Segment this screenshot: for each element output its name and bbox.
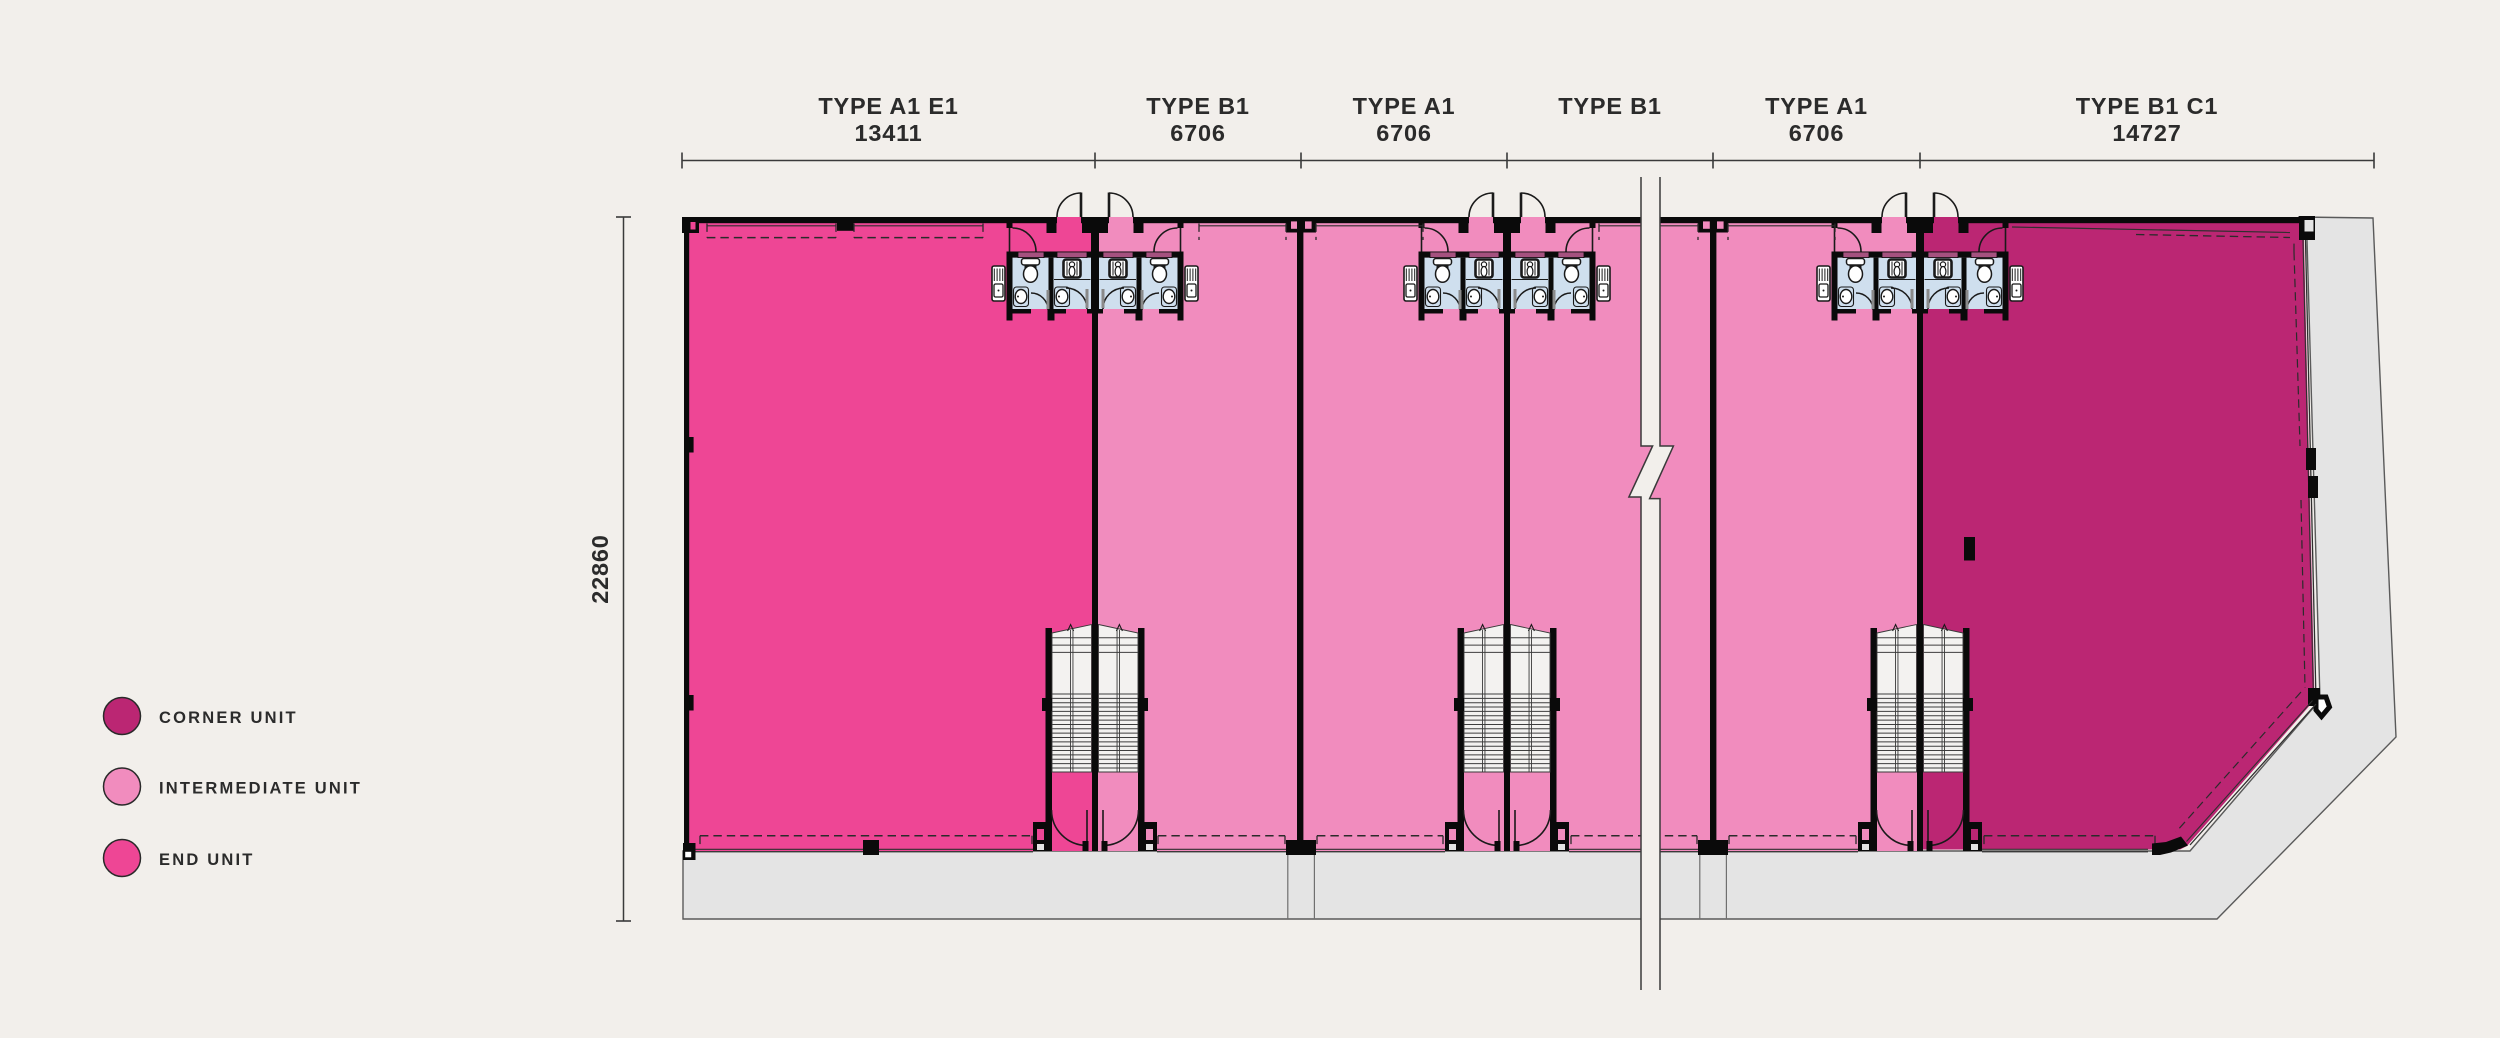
svg-text:TYPE B1 C1: TYPE B1 C1 <box>2076 93 2219 119</box>
svg-text:13411: 13411 <box>854 120 922 146</box>
svg-text:6706: 6706 <box>1170 120 1225 146</box>
svg-text:6706: 6706 <box>1376 120 1431 146</box>
svg-text:TYPE A1: TYPE A1 <box>1353 93 1456 119</box>
svg-text:END UNIT: END UNIT <box>159 851 255 869</box>
svg-text:TYPE A1: TYPE A1 <box>1765 93 1868 119</box>
svg-text:6706: 6706 <box>1789 120 1844 146</box>
svg-text:TYPE A1 E1: TYPE A1 E1 <box>818 93 958 119</box>
svg-text:14727: 14727 <box>2112 120 2181 146</box>
svg-text:22860: 22860 <box>587 534 613 603</box>
svg-text:TYPE B1: TYPE B1 <box>1146 93 1250 119</box>
svg-text:INTERMEDIATE UNIT: INTERMEDIATE UNIT <box>159 780 362 798</box>
svg-text:CORNER UNIT: CORNER UNIT <box>159 709 298 727</box>
svg-text:TYPE B1: TYPE B1 <box>1558 93 1662 119</box>
